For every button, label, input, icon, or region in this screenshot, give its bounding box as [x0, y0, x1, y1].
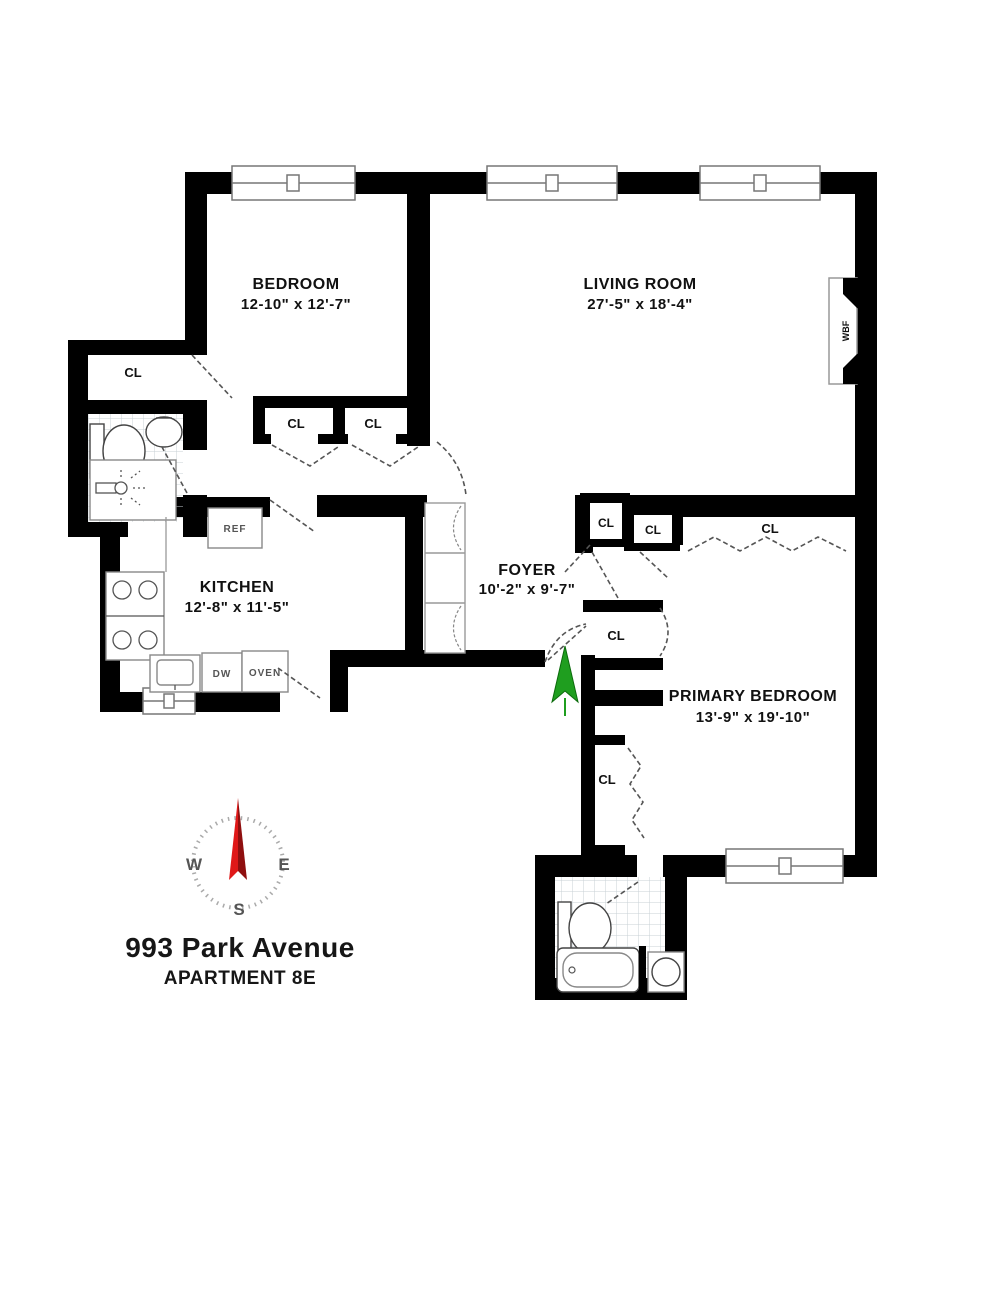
- bedroom-name-label: BEDROOM: [252, 276, 339, 293]
- oven-label: OVEN: [249, 668, 281, 679]
- foyer-dims-label: 10'-2" x 9'-7": [479, 581, 576, 598]
- floor-plan: WBF REF: [0, 0, 1000, 1295]
- closet-label-bedroom-2: CL: [364, 416, 381, 431]
- primary-bedroom-name-label: PRIMARY BEDROOM: [669, 688, 837, 705]
- entry-arrow-icon: [552, 646, 578, 716]
- closet-label-entry: CL: [607, 628, 624, 643]
- primary-bedroom-window: [726, 849, 843, 883]
- floor-plan-page: WBF REF: [0, 0, 1000, 1295]
- fireplace-label: WBF: [841, 320, 851, 341]
- compass-needle-icon: [229, 798, 247, 880]
- kitchen-dims-label: 12'-8" x 11'-5": [185, 599, 290, 616]
- foyer-built-ins: [425, 503, 465, 653]
- closet-label-gallery-1: CL: [598, 516, 614, 530]
- closet-label-primary-long: CL: [761, 521, 778, 536]
- bathroom-2: [555, 877, 684, 994]
- refrigerator-label: REF: [224, 524, 247, 535]
- sink-1-icon: [146, 417, 182, 447]
- living-room-name-label: LIVING ROOM: [583, 276, 696, 293]
- compass-east-label: E: [278, 855, 289, 874]
- sink-2-icon: [652, 958, 680, 986]
- compass-rose: W E S: [186, 798, 290, 919]
- toilet-2-icon: [569, 903, 611, 953]
- compass-west-label: W: [186, 855, 203, 874]
- closet-label-bedroom-1: CL: [287, 416, 304, 431]
- closet-label-hall: CL: [124, 365, 141, 380]
- foyer-name-label: FOYER: [498, 562, 556, 579]
- living-room-dims-label: 27'-5" x 18'-4": [587, 296, 693, 313]
- bedroom-dims-label: 12-10" x 12'-7": [241, 296, 351, 313]
- kitchen-name-label: KITCHEN: [200, 579, 275, 596]
- living-room-window-2: [700, 166, 820, 200]
- primary-bedroom-dims-label: 13'-9" x 19'-10": [696, 709, 810, 726]
- bathroom-1: [88, 414, 183, 522]
- living-room-window-1: [487, 166, 617, 200]
- compass-south-label: S: [233, 900, 244, 919]
- closet-label-primary-side: CL: [598, 772, 615, 787]
- apartment-subtitle: APARTMENT 8E: [164, 968, 316, 989]
- closet-label-gallery-2: CL: [645, 523, 661, 537]
- bedroom-window: [232, 166, 355, 200]
- address-title: 993 Park Avenue: [125, 932, 355, 963]
- dishwasher-label: DW: [213, 669, 232, 680]
